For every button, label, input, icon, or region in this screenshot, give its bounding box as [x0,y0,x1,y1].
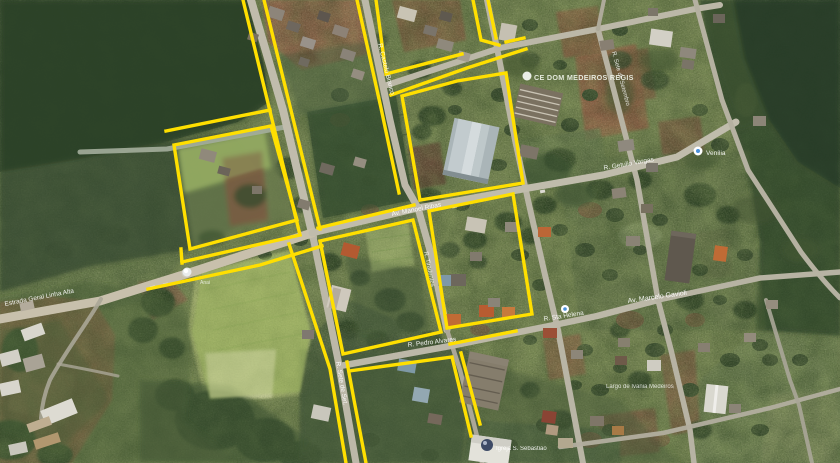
svg-text:Anai: Anai [200,280,210,286]
svg-text:Igreja S. Sebastião: Igreja S. Sebastião [496,446,547,452]
svg-text:Venília: Venília [706,150,726,157]
svg-text:Largo de Ivania Medeiros: Largo de Ivania Medeiros [606,384,674,390]
